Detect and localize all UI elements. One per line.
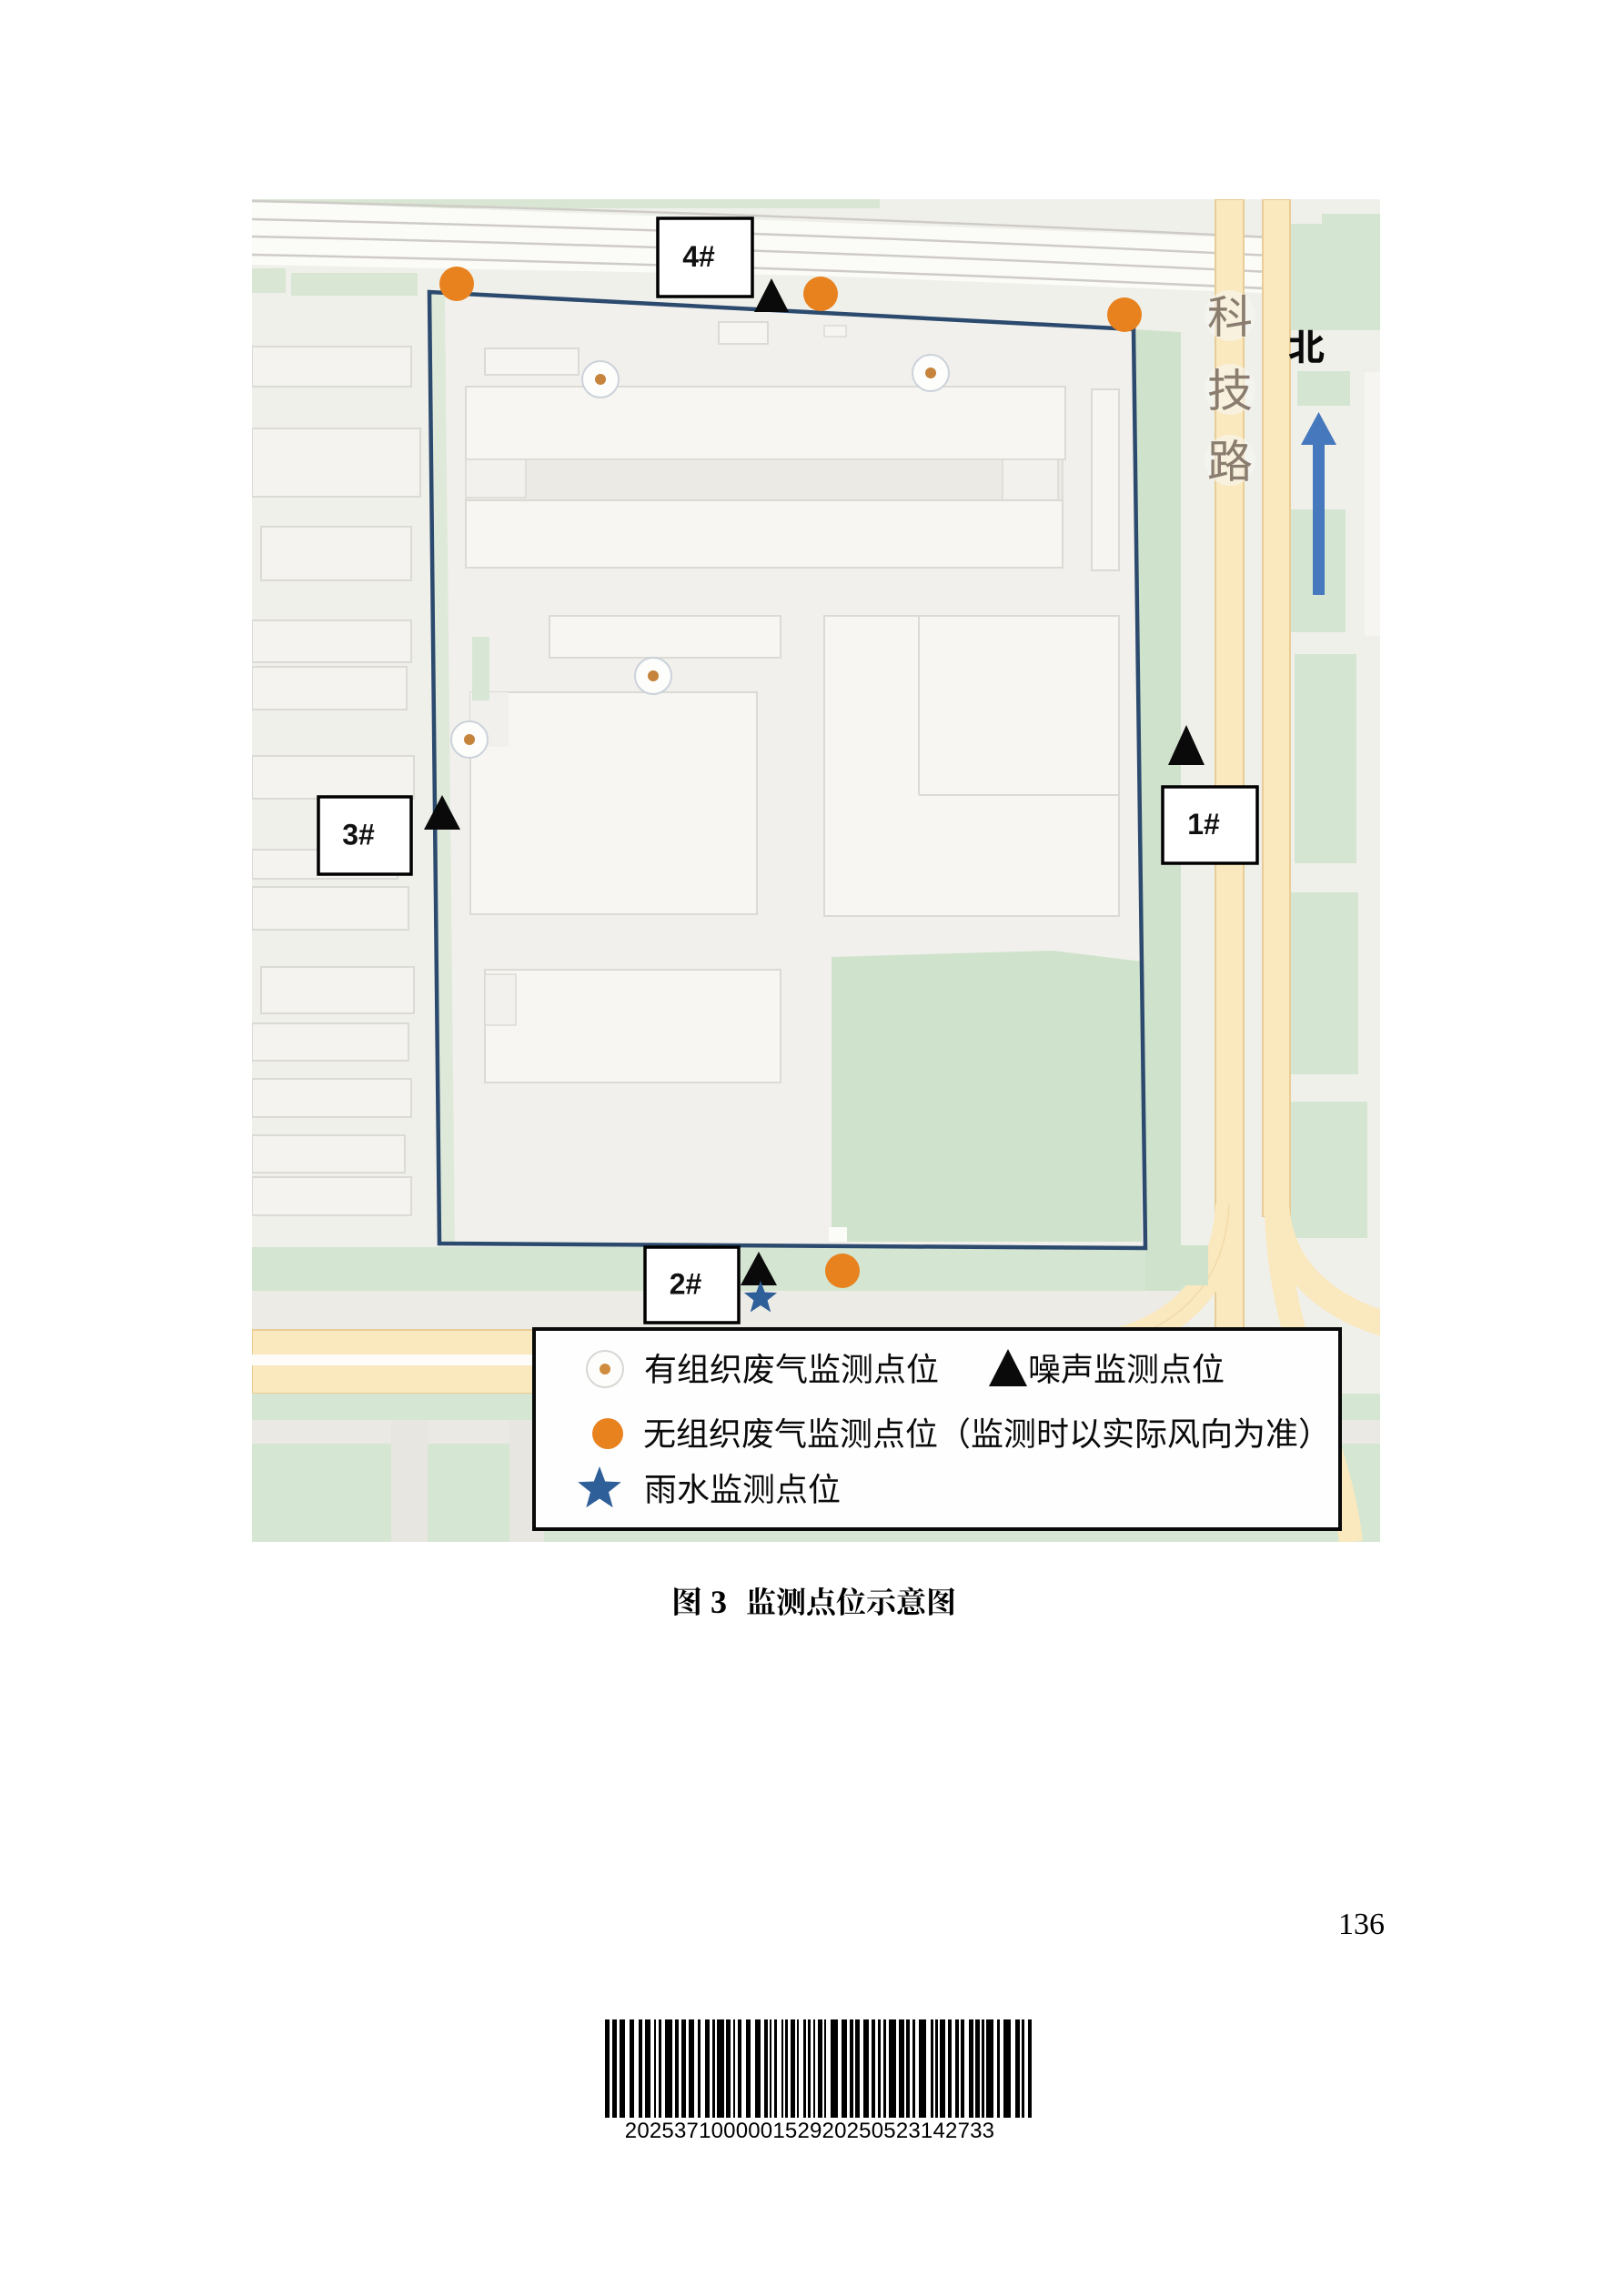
svg-text:3: 3 (711, 1584, 727, 1620)
